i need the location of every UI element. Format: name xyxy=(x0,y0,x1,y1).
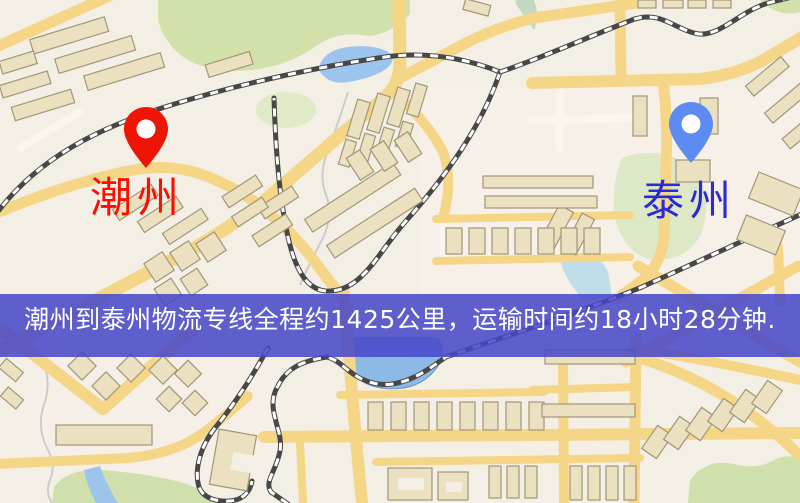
map-artwork xyxy=(0,0,800,503)
destination-label: 泰州 xyxy=(642,180,736,222)
origin-label: 潮州 xyxy=(90,177,184,219)
origin-pin-icon xyxy=(123,106,169,172)
route-info-banner: 潮州到泰州物流专线全程约1425公里，运输时间约18小时28分钟. xyxy=(0,294,800,357)
route-info-text: 潮州到泰州物流专线全程约1425公里，运输时间约18小时28分钟. xyxy=(24,307,776,332)
map-canvas: 潮州 泰州 潮州到泰州物流专线全程约1425公里，运输时间约18小时28分钟. xyxy=(0,0,800,503)
destination-pin-icon xyxy=(668,101,714,167)
